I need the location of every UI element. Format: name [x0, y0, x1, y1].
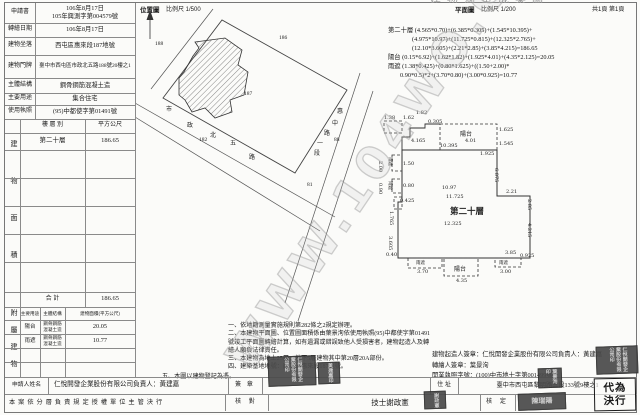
dimension-label: 3.70	[417, 269, 428, 275]
calc-line: (12.10*3.605)+(2.21*2.85)+(3.85*4.215)=1…	[388, 44, 640, 53]
calc-line: 雨遮 (1.38*0.425)+(0.80*1.625)+((1.50+2.00…	[388, 62, 640, 71]
info-label: 申請書	[5, 3, 35, 23]
grid-line	[5, 362, 135, 363]
map-label: 中	[332, 118, 338, 127]
dimension-label: 陽台	[460, 129, 472, 138]
dimension-label: 0.925	[520, 253, 534, 259]
dimension-label: 1.545	[499, 141, 513, 147]
dimension-label: 0.90	[377, 183, 383, 194]
location-map-labels: 1881861871828881市政北五路惠中路一段	[135, 3, 380, 330]
grid-line	[268, 394, 269, 411]
applicant-name-label: 申請人姓名	[5, 377, 48, 394]
grid-line	[5, 234, 135, 235]
grid-line	[35, 3, 36, 119]
grid-line	[480, 394, 481, 411]
info-label: 主體結構	[5, 78, 35, 93]
attached-col-structure: 主體結構	[40, 307, 65, 320]
dimension-label: 4.01	[465, 138, 476, 144]
grid-line	[135, 3, 136, 377]
grid-line	[5, 55, 135, 56]
info-label: 使用執照	[5, 105, 35, 119]
applicant-name-value: 仁悅開發企業股份有限公司負責人：黃建嘉	[50, 377, 232, 394]
grid-line	[5, 178, 135, 179]
map-label: 市	[166, 104, 172, 113]
dimension-label: 雨遮	[387, 157, 393, 166]
grid-line	[40, 307, 41, 377]
dimension-label: 雨遮	[416, 260, 425, 266]
company-seal: 仁悅開發企業股份有限公司印	[267, 355, 316, 387]
dimension-label: 雨遮	[387, 181, 393, 190]
calc-line: (4.975*10.97)+(11.725*0.815)+(12.325*2.7…	[388, 35, 640, 44]
attached-row-structure: 鋼骨鋼筋 混凝土造	[40, 320, 65, 334]
note-line: 一、依地籍測量實施規則第282條之2規定辦理。	[228, 322, 434, 330]
signature-cell-label: 簽 章	[228, 377, 262, 394]
document-title: 建物測量成果圖	[430, 0, 580, 3]
attached-col-area: 建物面積(平方公尺)	[65, 307, 135, 320]
attached-row-area: 20.05	[65, 320, 135, 334]
map-label: 政	[187, 120, 193, 129]
dimension-label: 1.925	[480, 151, 494, 157]
area-row-floor: 第二十層	[20, 133, 85, 150]
info-label: 建物門牌	[5, 55, 35, 78]
info-label: 轉繪日期	[5, 23, 35, 37]
area-total-value: 186.65	[85, 292, 135, 307]
technician-name: 技士謝政憲	[350, 394, 430, 411]
attached-row-area: 10.77	[65, 334, 135, 348]
grid-line	[5, 334, 135, 335]
deputy-decision-stamp: 代為決行	[594, 378, 637, 412]
section-label-building-area: 建物面積	[8, 140, 18, 288]
grid-line	[5, 307, 135, 308]
grid-line	[5, 133, 135, 134]
map-label: 81	[307, 182, 313, 188]
technician-seal: 謝政憲	[424, 391, 447, 410]
approve-label: 核 定	[480, 394, 515, 411]
attached-col-use: 主要用途	[20, 307, 40, 320]
grid-line	[5, 348, 135, 349]
grid-line	[5, 23, 135, 24]
map-label: 186	[279, 35, 287, 41]
grid-line	[225, 394, 226, 411]
map-label: 北	[210, 130, 216, 139]
dimension-label: 4.165	[411, 138, 425, 144]
dimension-label: 0.425	[400, 198, 414, 204]
calc-line: 0.90*0.5)*2+(3.70*0.80)+(3.00*0.925)=10.…	[388, 71, 640, 80]
floor-plan-title: 平面圖	[455, 4, 475, 14]
dimension-label: 1.62	[403, 115, 414, 121]
dimension-label: 1.625	[499, 127, 513, 133]
map-label: 一	[317, 138, 323, 147]
representative-seal: 黃建嘉印	[318, 362, 341, 385]
area-row-value: 186.65	[85, 133, 135, 150]
area-calculations: 第二十層 (4.565*0.70)+(6.385*0.305)+(1.545*1…	[388, 26, 640, 80]
approver-stamp: 陳瑞陽	[518, 392, 567, 411]
dimension-label: 10.395	[440, 143, 458, 149]
dimension-label: 10.97	[442, 185, 456, 191]
map-label: 路	[324, 128, 330, 137]
floor-plan-scale: 比例尺 1/200	[481, 4, 516, 13]
dimension-label: 第二十層	[450, 205, 484, 217]
dimension-label: 3.605	[387, 236, 393, 250]
dimension-label: 0.40	[386, 252, 397, 258]
dimension-label: 3.85	[505, 250, 516, 256]
info-value: 西屯區惠來段187地號	[35, 37, 135, 55]
grid-line	[85, 119, 86, 307]
grid-line	[65, 307, 66, 377]
floor-plan-labels: 10.395陽台4.011.6251.5451.9251.381.621.820…	[380, 95, 640, 320]
transcriber-seal: 葉景洵印	[538, 368, 563, 389]
calc-line: 第二十層 (4.565*0.70)+(6.385*0.305)+(1.545*1…	[388, 26, 640, 35]
grid-line	[5, 320, 135, 321]
grid-line	[458, 377, 459, 394]
attached-row-use: 雨遮	[20, 334, 40, 348]
grid-line	[515, 394, 516, 411]
dimension-label: 2.21	[506, 189, 517, 195]
grid-line	[20, 119, 21, 377]
dimension-label: 4.35	[456, 278, 467, 284]
info-value: 集合住宅	[35, 93, 135, 105]
map-label: 187	[244, 91, 252, 97]
company-seal: 仁悅開發企業股份有限公司印	[596, 345, 639, 374]
grid-line	[5, 150, 135, 151]
grid-line	[48, 377, 49, 394]
map-label: 段	[314, 148, 320, 157]
map-label: 路	[249, 152, 255, 161]
dimension-label: 2.85	[526, 199, 532, 210]
grid-line	[5, 206, 135, 207]
attached-row-structure: 鋼骨鋼筋 混凝土造	[40, 334, 65, 348]
info-value: 106年8月17日 105年興測字第004579號	[35, 3, 135, 23]
dimension-label: 0.80	[403, 183, 414, 189]
map-label: 188	[155, 41, 163, 47]
area-col-floor: 樓 層 別	[20, 119, 85, 133]
dimension-label: 1.38	[384, 115, 395, 121]
grid-line	[5, 119, 135, 120]
area-total-label: 合 計	[20, 292, 85, 307]
dimension-label: 1.82	[416, 110, 427, 116]
note-line: 二、本建物平面圖、位置圖面積係由葉景洵依使用執照(95)中都使字第01491號竣…	[228, 330, 434, 355]
info-value: 鋼骨鋼筋混凝土造	[35, 78, 135, 93]
check-label: 核 對	[225, 394, 268, 411]
info-label: 建物坐落	[5, 37, 35, 55]
dimension-label: 0.305	[428, 119, 442, 125]
info-label: 主要用途	[5, 93, 35, 105]
grid-line	[262, 377, 263, 394]
info-value: (95)中都使字第01491號	[35, 105, 135, 119]
dimension-label: 6.875	[493, 168, 499, 182]
grid-line	[5, 292, 135, 293]
calc-line: 陽台 (0.15*6.92)+(1.62*1.82)+(1.925*4.01)+…	[388, 53, 640, 62]
dimension-label: 3.00	[500, 269, 511, 275]
dimension-label: 陽台	[454, 264, 466, 273]
dimension-label: 11.725	[446, 194, 464, 200]
grid-line	[5, 105, 135, 106]
grid-line	[5, 37, 135, 38]
info-value: 臺中市西屯區市政北五路188號20樓之1	[35, 55, 135, 78]
map-label: 惠	[337, 106, 343, 115]
delegation-statement: 本案依分層負責規定授權單位主管決行	[5, 394, 229, 411]
info-value: 106年8月17日	[35, 23, 135, 37]
grid-line	[5, 78, 135, 79]
dimension-label: 雨遮	[499, 260, 508, 266]
map-label: 88	[334, 137, 340, 143]
map-label: 五	[230, 138, 236, 147]
map-label: 182	[199, 137, 207, 143]
dimension-label: 1.765	[388, 211, 394, 225]
grid-line	[5, 93, 135, 94]
sheet-number: 共1頁 第1頁	[592, 4, 624, 13]
dimension-label: 1.50	[403, 161, 414, 167]
grid-line	[228, 377, 229, 394]
building-survey-document: 建物測量成果圖 位置圖 比例尺 1/500 平面圖 比例尺 1/200 共1頁 …	[0, 0, 640, 415]
dimension-label: 12.325	[444, 221, 462, 227]
area-col-sqm: 平方公尺	[85, 119, 135, 133]
grid-line	[5, 262, 135, 263]
dimension-label: 4.215	[526, 223, 532, 237]
dimension-label: 2.00	[377, 161, 383, 172]
attached-row-use: 陽台	[20, 320, 40, 334]
